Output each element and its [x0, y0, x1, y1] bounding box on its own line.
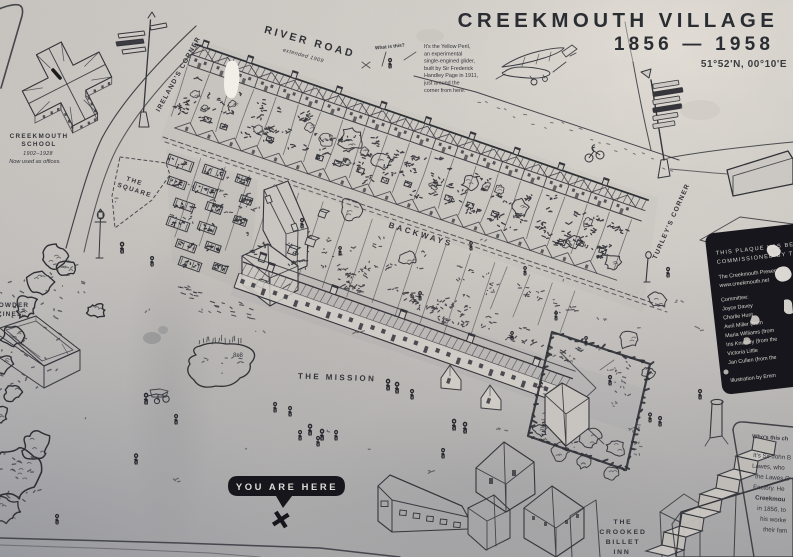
svg-text:OWDER: OWDER: [0, 302, 29, 309]
svg-text:single-engined glider,: single-engined glider,: [424, 59, 475, 65]
svg-text:51°52'N, 00°10'E: 51°52'N, 00°10'E: [701, 59, 787, 70]
svg-text:CREEKMOUTH VILLAGE: CREEKMOUTH VILLAGE: [458, 9, 779, 32]
svg-text:an experimental: an experimental: [424, 51, 462, 57]
svg-text:CREEKMOUTH: CREEKMOUTH: [10, 133, 69, 140]
svg-text:1902–1928: 1902–1928: [23, 151, 53, 157]
svg-text:Handley Page in 1911,: Handley Page in 1911,: [424, 73, 479, 79]
svg-text:built by Sir Frederick: built by Sir Frederick: [424, 66, 473, 72]
svg-text:THE: THE: [614, 519, 633, 526]
svg-text:SCHOOL: SCHOOL: [21, 141, 56, 148]
svg-text:corner from here.: corner from here.: [424, 88, 465, 94]
svg-text:1856 — 1958: 1856 — 1958: [614, 34, 774, 55]
svg-text:ZINES: ZINES: [0, 311, 22, 318]
svg-text:It's the Yellow Peril,: It's the Yellow Peril,: [424, 44, 471, 50]
svg-text:8ʚ8: 8ʚ8: [233, 353, 243, 359]
svg-text:CROOKED: CROOKED: [599, 529, 646, 536]
svg-text:BILLET: BILLET: [606, 539, 641, 546]
svg-text:INN: INN: [613, 549, 630, 556]
svg-text:just around the: just around the: [423, 81, 460, 87]
svg-text:Now used as offices.: Now used as offices.: [9, 159, 61, 165]
svg-text:YOU ARE HERE: YOU ARE HERE: [236, 481, 338, 492]
